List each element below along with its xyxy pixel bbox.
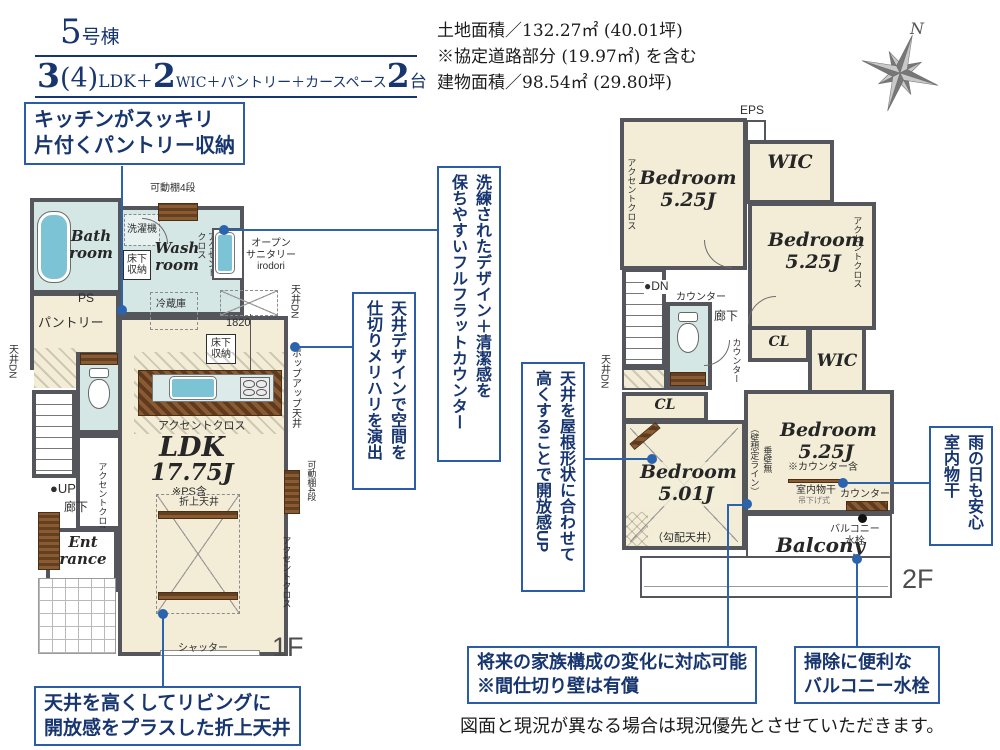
f2-toilet-door-arc (704, 340, 730, 366)
f2-wall-line-label: （壁想定ライン） (749, 424, 759, 508)
compass-rose: N (855, 18, 951, 114)
site-info: 土地面積／132.27㎡ (40.01坪) ※協定道路部分 (19.97㎡) を… (437, 18, 697, 96)
f2-accent-cloth-left: アクセントクロス (626, 158, 636, 242)
callout-balcony-faucet: 掃除に便利な バルコニー水栓 (794, 646, 940, 704)
f2-drying-sublabel: 吊下げ式 (798, 496, 830, 505)
callout-line-balcony-faucet (856, 560, 858, 646)
f2-drying-bar (788, 479, 844, 483)
callout-line-pantry (121, 166, 123, 310)
f2-bedroom1-label: Bedroom 5.25J (638, 168, 738, 212)
f2-cl1-label: CL (764, 334, 794, 350)
f1-folded-ceiling-label: 折上天井 (172, 496, 226, 510)
f2-bedroom2-label: Bedroom 5.25J (768, 230, 858, 274)
f2-tarekabe-label: 垂壁無 (762, 446, 772, 492)
callout-flat-counter: 洗練されたデザイン＋清潔感を 保ちやすいフルフラットカウンター (437, 166, 501, 462)
f2-toilet-tank (678, 312, 698, 322)
callout-line-folded-ceiling (162, 615, 164, 687)
callout-line-counter (226, 229, 437, 231)
f2-accent-cloth-right: アクセントクロス (852, 216, 862, 300)
f1-accent-cloth-kitchen: アクセントクロス (158, 420, 245, 433)
f2-slope-ceiling-note: （勾配天井） (652, 532, 718, 545)
f1-shutter-label: シャッター (178, 643, 228, 655)
callout-dot-counter (219, 225, 229, 235)
f2-counter-v-label: カウンター (731, 338, 741, 398)
f1-dimension-label: 1820 (226, 317, 250, 330)
f1-folded-ceiling-beam-top (158, 511, 238, 519)
f1-floor-tag: 1F (272, 632, 304, 663)
callout-roof-shape: 天井を屋根形状に合わせて 高くすることで開放感UP (521, 362, 585, 592)
callout-line-ceiling-design (298, 346, 352, 348)
callout-kitchen-pantry: キッチンがスッキリ 片付くパントリー収納 (24, 102, 245, 165)
callout-indoor-drying: 雨の日も安心 室内物干 (929, 426, 993, 546)
f1-ceiling-dn-zone (220, 290, 278, 316)
f1-folded-ceiling-beam-bottom (158, 592, 238, 600)
f1-top-shelf-label: 可動棚4段 (150, 183, 196, 195)
f1-ceiling-dn-right-label: 天井DN (288, 284, 300, 336)
f2-faucet-label: バルコニー 水栓 (830, 524, 880, 547)
f2-bedroom3-note: ※カウンター含 (788, 462, 858, 474)
f2-wic1-label: WIC (760, 152, 820, 174)
f1-ceiling-dn-left-label: 天井DN (6, 344, 18, 396)
land-area: 土地面積／132.27㎡ (40.01坪) (437, 18, 697, 44)
callout-line-partition (727, 504, 729, 646)
header-rule-bottom (35, 96, 417, 98)
f2-counter2-label: カウンター (840, 489, 890, 501)
floorplan-flyer: 5号棟 3(4)LDK＋2WIC＋パントリー＋カースペース2台 土地面積／132… (0, 0, 1000, 750)
f1-right-shelf (284, 470, 300, 514)
f2-faucet-dot (858, 514, 867, 523)
unit-title: 5号棟 (60, 12, 120, 52)
f1-entrance-label: Ent rance (54, 534, 112, 569)
callout-dot-partition (742, 499, 752, 509)
plan-ldk-label: LDK＋ (98, 72, 153, 92)
callout-line-indoor-drying (846, 482, 929, 484)
building-area: 建物面積／98.54㎡ (29.80坪) (437, 70, 697, 96)
f1-up-label: ●UP (50, 482, 76, 497)
f2-eps-shaft (746, 120, 766, 142)
callout-line-roof-shape (574, 458, 650, 460)
f2-cl2-label: CL (650, 397, 680, 413)
f1-fridge-space (150, 292, 198, 330)
unit-number: 5 (60, 12, 82, 52)
f2-toilet-shape (677, 323, 699, 353)
f2-bedroom4-label: Bedroom 5.01J (640, 462, 732, 506)
callout-ceiling-design: 天井デザインで空間を 仕切りメリハリを演出 (352, 292, 416, 490)
f2-stairs-hatch (622, 368, 666, 390)
f2-counter-strip (846, 501, 888, 511)
callout-dot-ceiling-design (290, 342, 300, 352)
callout-partition: 将来の家族構成の変化に対応可能 ※間仕切り壁は有償 (467, 646, 757, 704)
f1-bathroom-label: Bath room (62, 228, 120, 263)
f1-top-shelf (158, 203, 198, 221)
f2-hall-label: 廊下 (714, 310, 738, 324)
f2-wic2-label: WIC (814, 352, 860, 372)
f2-toilet-shelf (670, 372, 706, 386)
f2-floor-tag: 2F (902, 564, 934, 595)
plan-ldk-alt: (4) (60, 63, 98, 94)
f2-drying-label: 室内物干 (796, 485, 836, 497)
unit-suffix: 号棟 (82, 26, 120, 48)
f1-stove (240, 377, 270, 399)
road-note: ※協定道路部分 (19.97㎡) を含む (437, 44, 697, 70)
f1-popup-ceiling-label: ポップアップ天井 (289, 348, 301, 452)
f2-bedroom4-crosshatch (626, 512, 648, 546)
f1-toilet-shelf (80, 353, 118, 365)
compass-star-icon: N (855, 18, 951, 114)
callout-dot-pantry (117, 305, 127, 315)
disclaimer-text: 図面と現況が異なる場合は現況優先とさせていただきます。 (460, 712, 944, 738)
f1-open-sanitary-label: オープン サニタリー irodori (246, 238, 296, 273)
f1-kitchen-sink (170, 377, 216, 399)
callout-dot-balcony-faucet (852, 554, 862, 564)
f1-entrance-porch-tiles (38, 578, 116, 654)
callout-dot-roof-shape (647, 454, 657, 464)
callout-dot-folded-ceiling (158, 609, 168, 619)
f1-shoe-shelf (38, 512, 60, 570)
f1-accent-cloth-right: アクセントクロス (281, 536, 291, 620)
f1-toilet-shape (88, 379, 110, 409)
plan-car-unit: 台 (410, 72, 427, 92)
f1-pantry-hatch (34, 348, 78, 388)
callout-folded-ceiling: 天井を高くしてリビングに 開放感をプラスした折上天井 (34, 686, 301, 746)
f2-ceiling-dn-label: 天井DN (598, 354, 610, 406)
f1-hall-label: 廊下 (64, 501, 88, 515)
f2-balcony-rail-line (644, 586, 888, 587)
f1-fridge-label: 冷蔵庫 (156, 299, 186, 311)
plan-ldk-count: 3 (37, 56, 60, 95)
plan-options-label: WIC＋パントリー＋カースペース (176, 75, 387, 91)
f2-eps-label: EPS (740, 104, 764, 118)
f1-toilet-tank (89, 368, 109, 378)
plan-car-count: 2 (387, 56, 410, 95)
f1-ps-label: PS (78, 292, 94, 306)
callout-dot-indoor-drying (838, 478, 848, 488)
f2-dn-label: ●DN (644, 280, 669, 294)
f1-right-shelf-label: 可動棚4段 (306, 460, 316, 522)
compass-north-label: N (909, 19, 925, 38)
plan-wic-count: 2 (153, 56, 176, 95)
f1-pantry-label: パントリー (38, 316, 104, 331)
plan-summary: 3(4)LDK＋2WIC＋パントリー＋カースペース2台 (37, 56, 427, 95)
f1-underfloor-storage-1: 床下 収納 (123, 250, 151, 280)
f2-bedroom3-label: Bedroom 5.25J (780, 420, 872, 464)
f1-stairs (32, 390, 76, 478)
f1-ldk-size: 17.75J (146, 460, 238, 486)
f1-sanitary-sink (216, 233, 234, 273)
